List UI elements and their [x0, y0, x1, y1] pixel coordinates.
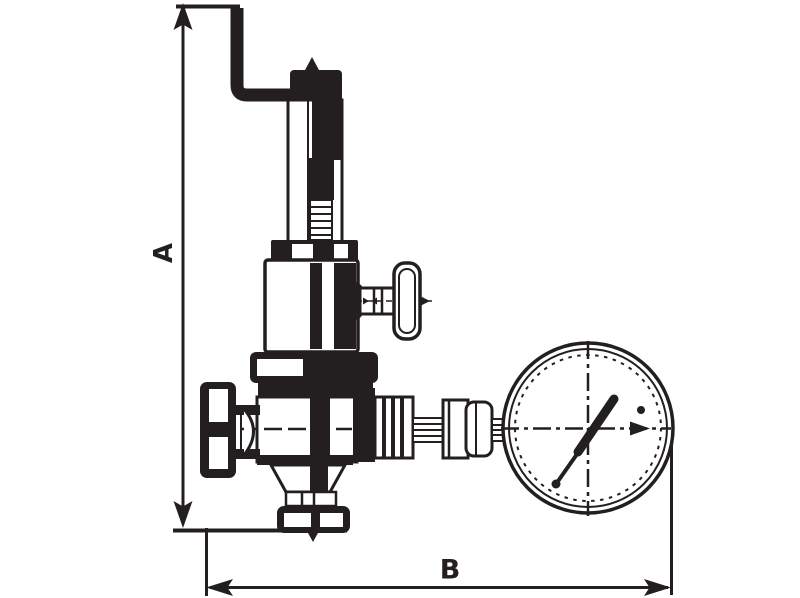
- inlet-neck-bulge: [244, 409, 254, 455]
- gauge-dial-dot: [637, 406, 645, 414]
- fitting-block: [443, 400, 468, 458]
- dimension-label-b: B: [440, 555, 461, 586]
- outlet-thread-neck: [413, 418, 443, 442]
- housing-flange: [250, 352, 378, 383]
- inlet-cap: [200, 382, 260, 478]
- stem-thread-lines: [310, 200, 332, 240]
- stem-peak: [304, 57, 320, 72]
- pressure-gauge: [501, 341, 673, 516]
- bent-lever-pipe: [237, 8, 297, 95]
- dimension-label-a: A: [149, 243, 179, 263]
- stem-top-cap: [290, 70, 342, 102]
- outlet-fitting: [375, 397, 508, 458]
- handle-screw-tip: [420, 296, 430, 306]
- handle-bar: [394, 263, 420, 339]
- needle-counterweight: [552, 480, 561, 489]
- outlet-block: [353, 388, 375, 462]
- drawing-canvas: A B: [0, 0, 800, 598]
- bottom-stub: [308, 533, 318, 542]
- bottom-taper: [271, 465, 345, 492]
- lever-pipe: [237, 8, 297, 95]
- fitting-nut: [466, 402, 492, 456]
- spring-housing: [265, 240, 358, 352]
- bottom-outlet: [271, 465, 350, 542]
- valve-body: [240, 383, 375, 465]
- valve-dimensional-drawing: A B: [0, 0, 800, 598]
- bottom-stem: [286, 492, 336, 506]
- adjusting-stem: [288, 57, 342, 242]
